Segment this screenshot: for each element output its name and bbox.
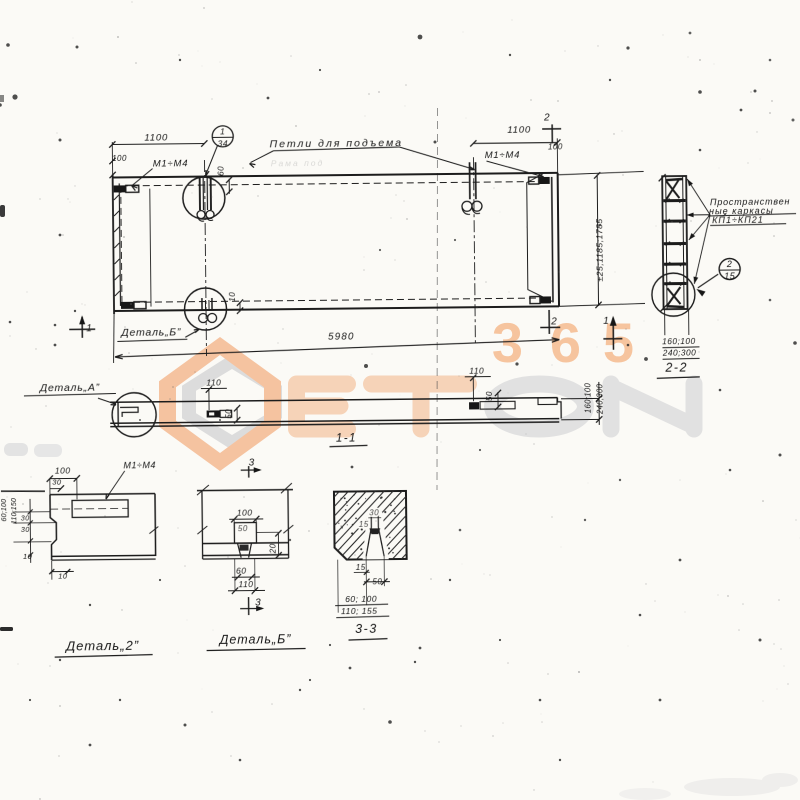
- svg-text:Петли для подъема: Петли для подъема: [270, 137, 404, 150]
- svg-text:30: 30: [21, 527, 30, 534]
- svg-text:±25;1185;1785: ±25;1185;1785: [594, 218, 605, 281]
- svg-text:30: 30: [21, 515, 30, 522]
- svg-text:2: 2: [726, 259, 733, 269]
- svg-text:50: 50: [485, 391, 494, 401]
- svg-text:М1÷М4: М1÷М4: [485, 150, 521, 161]
- svg-text:100: 100: [55, 465, 71, 475]
- svg-text:2: 2: [550, 316, 557, 327]
- svg-text:110: 110: [206, 377, 221, 387]
- svg-text:34: 34: [218, 138, 229, 148]
- svg-text:110;150: 110;150: [11, 498, 18, 524]
- svg-text:М1÷М4: М1÷М4: [123, 460, 156, 470]
- svg-text:КП1÷КП21: КП1÷КП21: [712, 214, 764, 225]
- svg-text:2-2: 2-2: [664, 360, 688, 374]
- svg-text:М1÷М4: М1÷М4: [153, 158, 189, 169]
- svg-text:1100: 1100: [144, 132, 168, 143]
- svg-text:50: 50: [224, 409, 233, 419]
- svg-text:15: 15: [356, 563, 366, 572]
- svg-text:160;100: 160;100: [583, 382, 592, 413]
- svg-text:110: 110: [469, 366, 484, 376]
- svg-text:110: 110: [238, 579, 253, 589]
- svg-text:240;300: 240;300: [662, 347, 697, 357]
- svg-text:Деталь„Б”: Деталь„Б”: [218, 632, 292, 647]
- svg-text:50: 50: [238, 524, 248, 533]
- svg-text:1: 1: [220, 126, 225, 136]
- svg-text:100: 100: [237, 508, 253, 518]
- svg-text:1: 1: [603, 316, 609, 327]
- svg-text:1100: 1100: [507, 125, 531, 136]
- svg-text:5980: 5980: [328, 331, 355, 342]
- svg-text:60; 100: 60; 100: [345, 594, 377, 604]
- svg-text:240;300: 240;300: [595, 383, 604, 415]
- svg-text:15: 15: [724, 271, 736, 281]
- svg-text:2: 2: [543, 112, 550, 123]
- svg-text:Рама под: Рама под: [271, 158, 325, 169]
- svg-text:60;100: 60;100: [1, 499, 8, 522]
- svg-text:110; 155: 110; 155: [341, 606, 378, 616]
- svg-text:Деталь„А”: Деталь„А”: [39, 382, 100, 395]
- svg-text:Деталь„Б”: Деталь„Б”: [120, 326, 181, 339]
- svg-text:10: 10: [23, 552, 33, 561]
- svg-text:20: 20: [268, 543, 277, 554]
- svg-text:60: 60: [236, 566, 247, 576]
- svg-text:100: 100: [548, 142, 563, 151]
- svg-text:60: 60: [217, 166, 226, 176]
- svg-text:1-1: 1-1: [336, 432, 357, 444]
- svg-text:3: 3: [249, 458, 255, 469]
- svg-text:10: 10: [228, 292, 237, 302]
- svg-text:15: 15: [359, 520, 369, 529]
- svg-text:Деталь„2”: Деталь„2”: [64, 638, 139, 654]
- svg-text:30: 30: [52, 478, 62, 487]
- svg-text:30: 30: [369, 508, 379, 517]
- svg-text:3-3: 3-3: [355, 622, 378, 636]
- svg-text:160;100: 160;100: [662, 336, 696, 346]
